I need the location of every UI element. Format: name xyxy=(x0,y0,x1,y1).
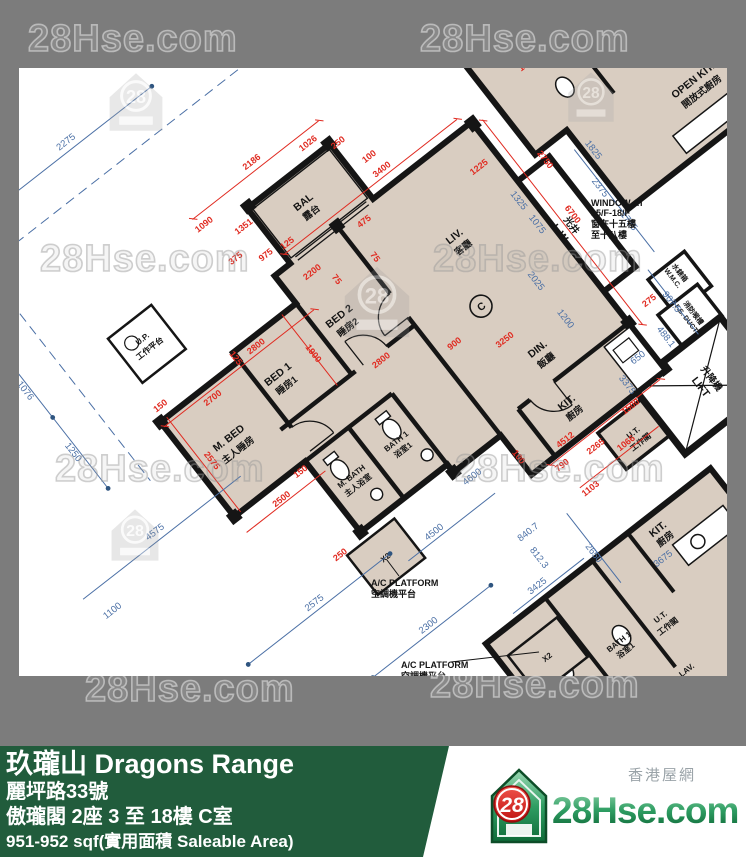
svg-text:1090: 1090 xyxy=(193,214,215,234)
svg-text:2275: 2275 xyxy=(54,131,77,153)
svg-text:窗在十五樓: 窗在十五樓 xyxy=(591,218,636,229)
svg-text:1250: 1250 xyxy=(62,441,84,464)
svg-text:4500: 4500 xyxy=(423,522,446,544)
estate-area: 951-952 sqf(實用面積 Saleable Area) xyxy=(6,830,294,853)
floorplan-image: 主人睡房 OPEN KIT. 開放式廚房 M. BATH 主人浴室 BATH 1… xyxy=(19,68,727,676)
28hse-logo[interactable]: 28 28Hse.com 香港屋網 xyxy=(488,762,738,854)
svg-text:840.7: 840.7 xyxy=(516,521,542,544)
svg-text:4575: 4575 xyxy=(143,521,166,543)
floorplan-drawing: 主人睡房 OPEN KIT. 開放式廚房 M. BATH 主人浴室 BATH 1… xyxy=(19,68,727,676)
watermark-text: 28Hse.com xyxy=(420,18,630,61)
svg-text:1026: 1026 xyxy=(297,133,319,153)
svg-text:100: 100 xyxy=(360,148,378,165)
caption-bar: 玖瓏山 Dragons Range 麗坪路33號 傲瓏閣 2座 3 至 18樓 … xyxy=(0,746,746,857)
svg-text:1076: 1076 xyxy=(19,379,36,402)
svg-text:275: 275 xyxy=(640,292,658,309)
svg-text:2500: 2500 xyxy=(270,489,292,509)
estate-address: 麗坪路33號 xyxy=(6,780,294,805)
caption-text-block: 玖瓏山 Dragons Range 麗坪路33號 傲瓏閣 2座 3 至 18樓 … xyxy=(6,748,294,853)
floorplan-page: 主人睡房 OPEN KIT. 開放式廚房 M. BATH 主人浴室 BATH 1… xyxy=(0,0,746,857)
svg-text:1351: 1351 xyxy=(233,216,255,236)
svg-text:975: 975 xyxy=(257,246,275,263)
svg-text:4600: 4600 xyxy=(461,466,484,488)
utility-platform xyxy=(108,305,186,383)
svg-text:至十八樓: 至十八樓 xyxy=(591,229,627,240)
svg-text:空調機平台: 空調機平台 xyxy=(401,670,446,676)
watermark-text: 28Hse.com xyxy=(28,18,238,61)
svg-text:250: 250 xyxy=(331,546,349,563)
svg-text:2300: 2300 xyxy=(417,615,440,637)
svg-text:1100: 1100 xyxy=(101,600,124,621)
svg-text:2575: 2575 xyxy=(303,592,326,614)
svg-text:1103: 1103 xyxy=(580,479,602,499)
svg-text:A/C PLATFORM: A/C PLATFORM xyxy=(401,660,468,670)
svg-text:空調機平台: 空調機平台 xyxy=(371,588,416,599)
svg-text:812.3: 812.3 xyxy=(527,545,550,571)
svg-text:150: 150 xyxy=(151,397,169,414)
svg-text:28: 28 xyxy=(499,794,524,817)
estate-block-floor-unit: 傲瓏閣 2座 3 至 18樓 C室 xyxy=(6,805,294,830)
window-note: WINDOW AT 15/F-18/F 窗在十五樓 至十八樓 xyxy=(591,198,644,240)
svg-text:WINDOW AT: WINDOW AT xyxy=(591,198,644,208)
site-name-text: 香港屋網 xyxy=(628,764,696,785)
28hse-house-icon: 28 xyxy=(488,762,550,846)
svg-text:2186: 2186 xyxy=(241,152,263,172)
svg-text:3400: 3400 xyxy=(371,159,393,179)
svg-text:A/C PLATFORM: A/C PLATFORM xyxy=(371,578,438,588)
svg-text:375: 375 xyxy=(226,250,244,267)
28hse-brand-text: 28Hse.com xyxy=(552,790,738,832)
estate-title: 玖瓏山 Dragons Range xyxy=(6,748,294,780)
svg-text:15/F-18/F: 15/F-18/F xyxy=(591,208,631,218)
